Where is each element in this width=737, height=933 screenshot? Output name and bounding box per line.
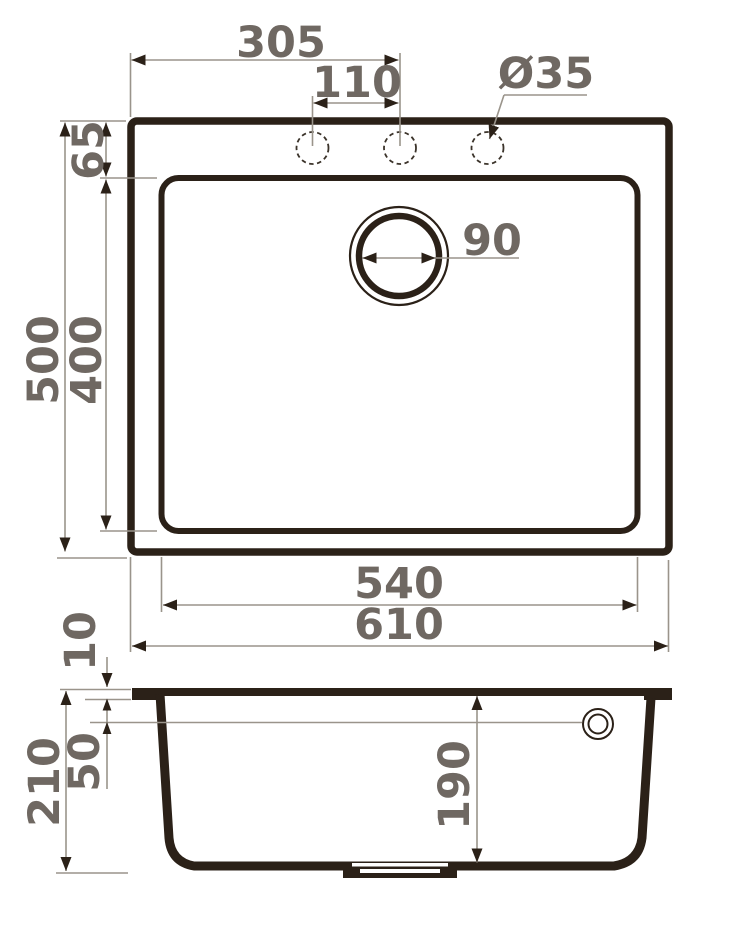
dim-bowl-inner-depth-label: 190 (430, 740, 480, 830)
dim-bowl-depth: 400 (62, 180, 112, 530)
dim-overall-width-label: 610 (354, 600, 444, 650)
dim-rim-thickness: 10 (56, 611, 107, 687)
section-drain-fitting (343, 862, 457, 878)
dim-bowl-inner-depth: 190 (430, 696, 480, 863)
dim-edge-to-bowl: 65 (64, 120, 114, 180)
section-bowl-outline (160, 694, 651, 866)
overflow-ring-inner (589, 715, 608, 734)
dim-hole-pitch: 110 (312, 58, 402, 108)
sink-outer-outline (131, 121, 669, 552)
drain-outer-circle (350, 207, 448, 305)
dim-edge-to-bowl-label: 65 (64, 120, 114, 180)
section-rim (132, 688, 672, 696)
dim-drain-diameter: 90 (363, 216, 522, 266)
faucet-hole-right (472, 132, 504, 164)
bowl-inner-outline (162, 178, 638, 531)
sink-dimension-drawing: 305 110 Ø35 65 500 4 (0, 0, 737, 933)
dim-overall-width: 610 (132, 600, 668, 650)
dim-hole-diameter: Ø35 (490, 49, 595, 139)
dim-rim-thickness-label: 10 (56, 611, 106, 671)
drain-ring (359, 216, 439, 296)
dim-hole-pitch-label: 110 (312, 58, 402, 108)
technical-drawing-canvas: 305 110 Ø35 65 500 4 (0, 0, 737, 933)
dim-drain-diameter-label: 90 (462, 216, 522, 266)
dim-hole-diameter-label: Ø35 (498, 49, 594, 99)
top-view: 305 110 Ø35 65 500 4 (19, 18, 669, 652)
dim-bowl-depth-label: 400 (62, 315, 112, 405)
dim-overall-height: 210 (20, 691, 70, 871)
section-rim-left-edge (132, 688, 158, 700)
dim-overall-height-label: 210 (20, 737, 70, 827)
section-view: 10 50 210 190 (20, 611, 672, 878)
